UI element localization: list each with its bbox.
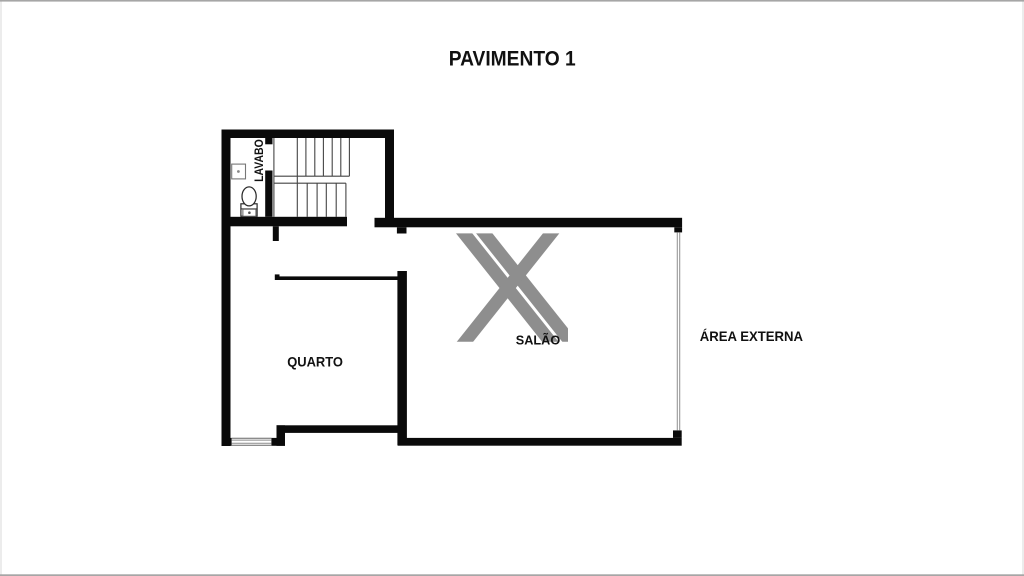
svg-text:LAVABO: LAVABO <box>252 139 266 182</box>
svg-text:SALÃO: SALÃO <box>516 333 560 348</box>
svg-text:QUARTO: QUARTO <box>287 353 343 369</box>
svg-text:ÁREA EXTERNA: ÁREA EXTERNA <box>700 328 803 344</box>
svg-text:PAVIMENTO 1: PAVIMENTO 1 <box>449 47 576 71</box>
